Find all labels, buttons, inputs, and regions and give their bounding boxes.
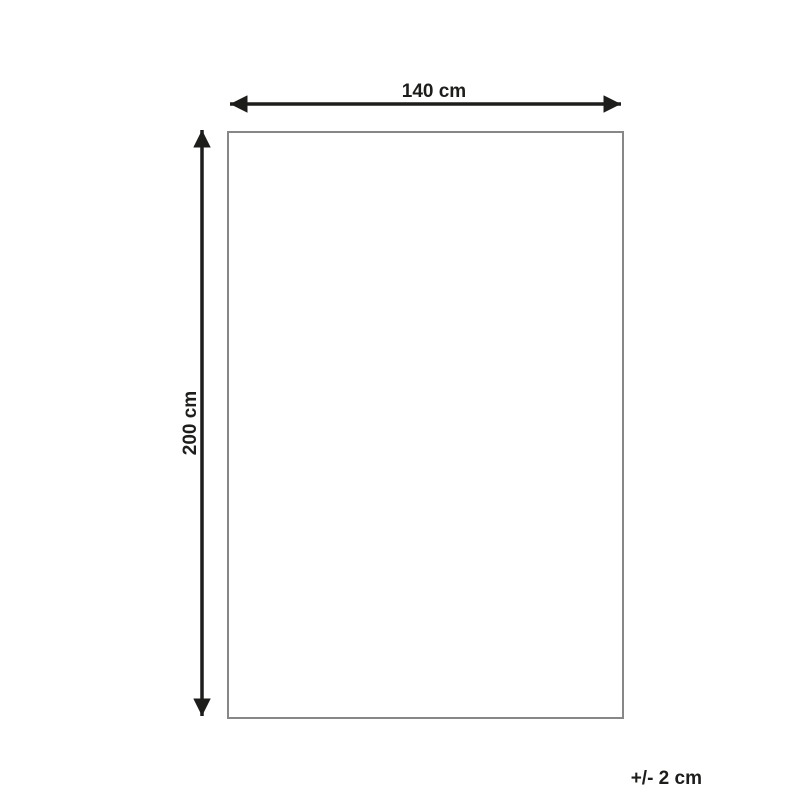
tolerance-label: +/- 2 cm	[631, 768, 702, 789]
dimension-diagram-svg: 140 cm 200 cm +/- 2 cm	[0, 0, 800, 800]
product-outline-rect	[228, 132, 623, 718]
height-label: 200 cm	[180, 391, 201, 455]
width-label: 140 cm	[402, 81, 466, 102]
dimension-diagram: 140 cm 200 cm +/- 2 cm	[0, 0, 800, 800]
